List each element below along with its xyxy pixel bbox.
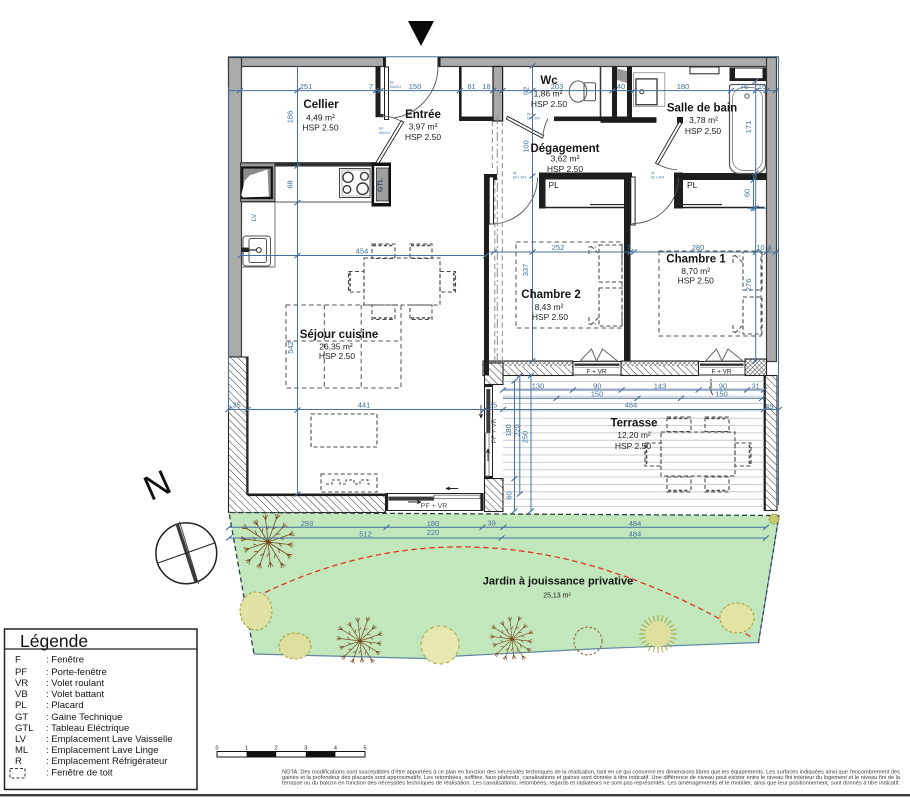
svg-text:542: 542 xyxy=(286,341,295,354)
svg-text:PL: PL xyxy=(549,180,560,190)
svg-text:10: 10 xyxy=(756,243,764,252)
svg-text:: Emplacement Lave Linge: : Emplacement Lave Linge xyxy=(46,745,158,756)
svg-text:3: 3 xyxy=(304,746,307,752)
svg-text:PL: PL xyxy=(687,180,698,190)
svg-text:276: 276 xyxy=(744,279,753,292)
svg-text:40: 40 xyxy=(617,82,625,91)
svg-text:12,20 m²: 12,20 m² xyxy=(617,430,651,440)
svg-text:171: 171 xyxy=(744,121,753,134)
svg-text:29: 29 xyxy=(765,402,773,411)
svg-text:18: 18 xyxy=(482,82,490,91)
svg-text:0: 0 xyxy=(215,746,218,752)
svg-text:3,78 m²: 3,78 m² xyxy=(689,115,718,125)
svg-text:7: 7 xyxy=(627,243,631,252)
svg-text:92: 92 xyxy=(522,87,531,95)
svg-text:LV: LV xyxy=(251,213,258,221)
svg-text:Cellier: Cellier xyxy=(303,99,339,111)
svg-text:: Fenêtre de toit: : Fenêtre de toit xyxy=(46,768,113,779)
svg-text:63 x 204: 63 x 204 xyxy=(527,116,540,120)
svg-text:39: 39 xyxy=(488,518,496,527)
svg-text:PF + VR: PF + VR xyxy=(491,418,498,443)
svg-text:7: 7 xyxy=(369,82,373,91)
svg-text:ML: ML xyxy=(15,745,28,756)
svg-text:61: 61 xyxy=(467,82,475,91)
svg-text:130: 130 xyxy=(532,381,545,390)
svg-text:180: 180 xyxy=(427,519,440,528)
svg-text:100: 100 xyxy=(522,140,531,153)
svg-text:180: 180 xyxy=(677,82,690,91)
svg-text:35: 35 xyxy=(489,401,497,410)
svg-text:Chambre 2: Chambre 2 xyxy=(521,289,580,301)
svg-text:484: 484 xyxy=(629,519,642,528)
svg-text:484: 484 xyxy=(629,530,642,539)
svg-text:HSP 2.50: HSP 2.50 xyxy=(531,99,568,109)
svg-text:76: 76 xyxy=(740,82,748,91)
svg-text:83 x 204: 83 x 204 xyxy=(651,175,664,179)
svg-text:26,35 m²: 26,35 m² xyxy=(319,342,353,352)
svg-text:83 x 204: 83 x 204 xyxy=(513,175,526,179)
svg-text:PF + VR: PF + VR xyxy=(421,503,448,510)
svg-text:VR: VR xyxy=(15,678,28,689)
svg-text:terrasse ou du balcon en fonct: terrasse ou du balcon en fonction des né… xyxy=(282,781,900,787)
svg-text:252: 252 xyxy=(552,243,565,252)
svg-text:454: 454 xyxy=(356,246,369,255)
svg-text:8,43 m²: 8,43 m² xyxy=(535,302,564,312)
svg-text:60: 60 xyxy=(505,491,514,499)
svg-text:Entrée: Entrée xyxy=(405,109,441,121)
svg-text:HSP 2.50: HSP 2.50 xyxy=(319,351,356,361)
svg-text:3,62 m²: 3,62 m² xyxy=(551,154,580,164)
svg-text:Jardin à jouissance privative: Jardin à jouissance privative xyxy=(483,576,633,588)
svg-text:R: R xyxy=(15,756,22,767)
svg-text:8,70 m²: 8,70 m² xyxy=(681,266,710,276)
svg-text:150: 150 xyxy=(715,390,728,399)
svg-text:220: 220 xyxy=(427,528,440,537)
svg-text:HSP 2.50: HSP 2.50 xyxy=(678,276,715,286)
svg-text:280: 280 xyxy=(692,243,705,252)
svg-text:: Fenêtre: : Fenêtre xyxy=(46,655,84,666)
svg-text:F + VR: F + VR xyxy=(587,368,607,375)
svg-text:16: 16 xyxy=(758,82,766,91)
svg-text:HSP 2.50: HSP 2.50 xyxy=(615,441,652,451)
svg-text:484: 484 xyxy=(625,401,638,410)
svg-text:4,49 m²: 4,49 m² xyxy=(306,113,335,123)
svg-text:GTL: GTL xyxy=(378,177,385,192)
svg-text:Chambre 1: Chambre 1 xyxy=(666,254,726,266)
svg-text:LV: LV xyxy=(15,734,27,745)
svg-text:5: 5 xyxy=(363,746,366,752)
svg-text:HSP 2.50: HSP 2.50 xyxy=(685,126,722,136)
svg-text:93x204: 93x204 xyxy=(390,85,401,89)
svg-text:143: 143 xyxy=(654,381,667,390)
svg-text:150: 150 xyxy=(591,390,604,399)
svg-text:HSP 2.50: HSP 2.50 xyxy=(532,312,569,322)
svg-text:Wc: Wc xyxy=(540,75,558,87)
svg-text:Séjour cuisine: Séjour cuisine xyxy=(300,329,379,341)
svg-text:F + VR: F + VR xyxy=(712,368,732,375)
svg-text:1,86 m²: 1,86 m² xyxy=(534,89,563,99)
svg-text:3,97 m²: 3,97 m² xyxy=(409,122,438,132)
svg-text:4: 4 xyxy=(767,243,771,252)
svg-text:HSP 2.50: HSP 2.50 xyxy=(405,132,442,142)
svg-text:Légende: Légende xyxy=(20,631,88,651)
svg-text:31: 31 xyxy=(751,381,759,390)
svg-text:PL: PL xyxy=(15,700,27,711)
svg-text:25,13 m²: 25,13 m² xyxy=(543,593,571,600)
svg-text:VB: VB xyxy=(15,689,28,700)
svg-text:: Tableau Eléctrique: : Tableau Eléctrique xyxy=(46,723,129,734)
svg-text:Salle de bain: Salle de bain xyxy=(667,103,737,115)
svg-text:GTL: GTL xyxy=(15,723,33,734)
svg-text:293: 293 xyxy=(301,519,314,528)
svg-text:Terrasse: Terrasse xyxy=(610,418,657,430)
svg-text:: Porte-fenêtre: : Porte-fenêtre xyxy=(46,667,107,678)
svg-text:F: F xyxy=(15,655,21,666)
svg-text:: Emplacement Lave Vaisselle: : Emplacement Lave Vaisselle xyxy=(46,734,173,745)
svg-text:GT: GT xyxy=(15,712,28,723)
svg-text:83x204: 83x204 xyxy=(379,131,390,135)
svg-text:251: 251 xyxy=(300,82,313,91)
svg-text:2: 2 xyxy=(275,746,278,752)
svg-text:: Volet roulant: : Volet roulant xyxy=(46,678,104,689)
svg-text:150: 150 xyxy=(409,82,422,91)
svg-text:337: 337 xyxy=(521,264,530,277)
svg-text:60: 60 xyxy=(743,189,752,197)
svg-text:441: 441 xyxy=(358,401,371,410)
svg-text:: Gaine Technique: : Gaine Technique xyxy=(46,712,122,723)
svg-text:35: 35 xyxy=(232,401,240,410)
svg-text:HSP 2.50: HSP 2.50 xyxy=(302,123,339,133)
svg-text:186: 186 xyxy=(286,111,295,124)
svg-text:HSP 2.50: HSP 2.50 xyxy=(547,164,584,174)
svg-text:68: 68 xyxy=(286,180,295,188)
svg-text:4: 4 xyxy=(334,746,337,752)
svg-text:1: 1 xyxy=(245,746,248,752)
svg-text:PF: PF xyxy=(15,667,27,678)
svg-text:: Volet battant: : Volet battant xyxy=(46,689,104,700)
svg-text:250: 250 xyxy=(521,431,530,444)
svg-text:: Placard: : Placard xyxy=(46,700,84,711)
svg-text:512: 512 xyxy=(359,530,372,539)
svg-text:: Emplacement Réfrigérateur: : Emplacement Réfrigérateur xyxy=(46,756,167,767)
